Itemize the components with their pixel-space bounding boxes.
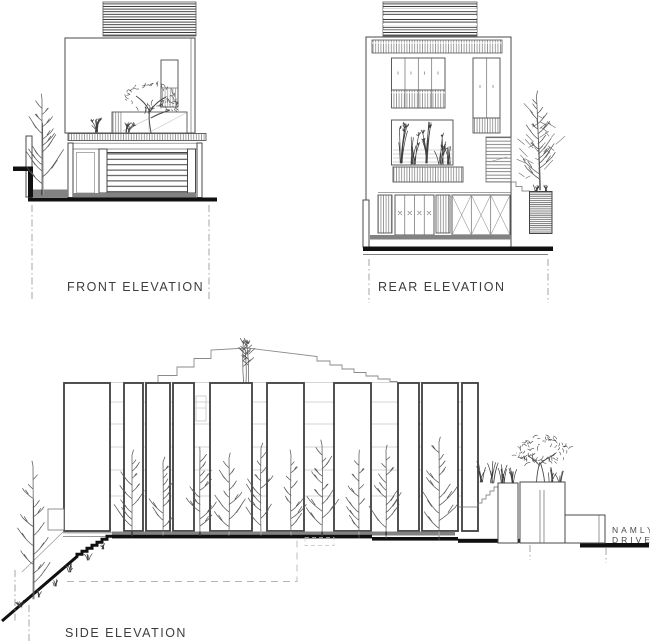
side-fin-10 bbox=[462, 383, 478, 531]
front-terrace-wall-louver bbox=[113, 113, 124, 133]
side-elevation-drawing bbox=[2, 338, 649, 643]
front-carport-slab bbox=[68, 134, 206, 141]
side-fin-4 bbox=[173, 383, 194, 531]
rear-window-right-louver bbox=[473, 118, 500, 133]
street-name-line2: DRIVE bbox=[612, 535, 650, 545]
side-left-tree bbox=[18, 461, 50, 599]
side-elevation-label: SIDE ELEVATION bbox=[65, 626, 187, 640]
side-left-box bbox=[48, 509, 64, 530]
side-fin-9 bbox=[422, 383, 458, 531]
side-roofline bbox=[158, 348, 397, 383]
side-wall-box-2 bbox=[520, 482, 565, 543]
side-wall-box-1 bbox=[498, 483, 518, 543]
front-window-louver bbox=[162, 89, 178, 107]
rear-ground-hatch bbox=[370, 235, 511, 240]
front-elevation-drawing bbox=[13, 2, 217, 302]
side-fin-7 bbox=[334, 383, 371, 531]
rear-right-planter bbox=[530, 192, 553, 234]
rear-elevation-drawing bbox=[363, 2, 565, 303]
side-fin-8 bbox=[398, 383, 419, 531]
side-basement-outline bbox=[67, 541, 297, 582]
rear-left-fin bbox=[363, 200, 369, 247]
rear-louver-door-2 bbox=[436, 195, 450, 233]
front-side-door bbox=[77, 153, 95, 194]
side-fin-6 bbox=[267, 383, 304, 531]
side-fin-1 bbox=[64, 383, 110, 531]
front-carport-post-left bbox=[99, 149, 107, 193]
rear-ground-line bbox=[363, 247, 553, 252]
rear-right-tree bbox=[523, 91, 555, 190]
rear-elevation-label: REAR ELEVATION bbox=[378, 280, 506, 294]
front-carport-post-right bbox=[188, 149, 196, 193]
side-fin-2 bbox=[124, 383, 143, 531]
street-name-line1: NAMLY bbox=[612, 525, 650, 535]
side-roof-plant bbox=[239, 338, 255, 382]
front-ground-line bbox=[28, 198, 217, 202]
side-round-tree-canopy bbox=[512, 435, 573, 466]
side-entry-stairs bbox=[2, 536, 112, 621]
front-roof-hedge bbox=[103, 2, 196, 36]
front-garage-door bbox=[107, 153, 188, 194]
rear-louver-door-1 bbox=[378, 195, 392, 233]
side-round-tree-trunk bbox=[528, 455, 554, 482]
drawing-sheet: FRONT ELEVATION REAR ELEVATION SIDE ELEV… bbox=[0, 0, 650, 644]
front-ground-hatch bbox=[73, 193, 196, 198]
side-fin-5 bbox=[210, 383, 252, 531]
front-elevation-label: FRONT ELEVATION bbox=[67, 280, 204, 294]
rear-top-louver-band bbox=[372, 40, 502, 53]
rear-mid-louver-band bbox=[393, 167, 463, 182]
